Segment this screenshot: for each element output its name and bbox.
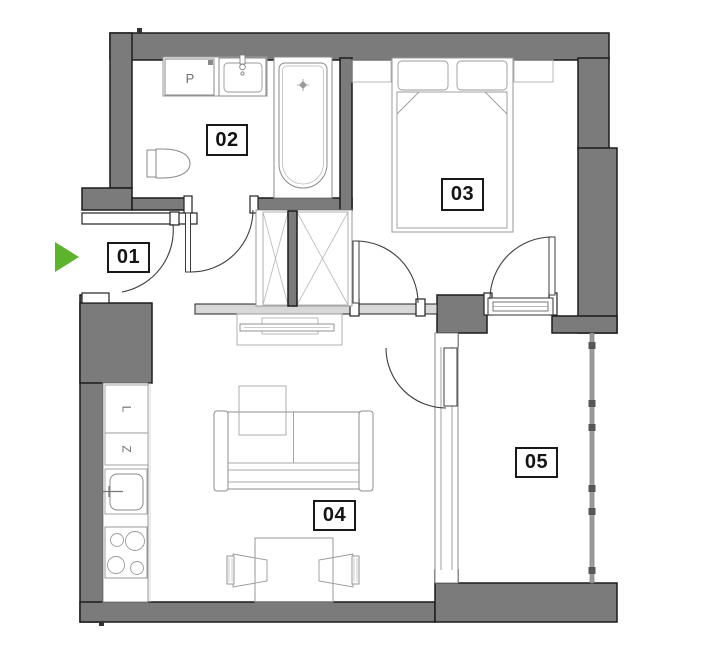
bathroom-sink	[219, 55, 266, 96]
kitchen-unit-z-label: Z	[120, 445, 134, 452]
floor-plan-drawing: P L Z	[0, 0, 714, 669]
walls	[80, 28, 617, 626]
nightstand-right	[514, 60, 553, 82]
entrance-lintel	[82, 213, 197, 224]
dining-chair-right	[319, 554, 359, 587]
kitchen-units: L Z	[103, 383, 150, 602]
wardrobe	[256, 210, 352, 306]
nightstand-left	[352, 60, 391, 82]
pillow-left	[398, 61, 448, 90]
bedroom-balcony-door	[488, 237, 555, 315]
washing-machine-label: P	[186, 71, 195, 86]
entrance-sill	[82, 293, 109, 303]
kitchen-sink	[103, 469, 147, 514]
sofa-armrest-left	[214, 411, 228, 491]
tv-cabinet	[237, 314, 342, 345]
pillow-right	[457, 61, 507, 90]
wall-tick-top	[137, 28, 142, 33]
room-label-01: 01	[107, 242, 150, 273]
room-label-04: 04	[313, 500, 356, 531]
room-label-03: 03	[441, 178, 484, 211]
living-balcony-door	[386, 348, 457, 408]
dining-chair-left	[227, 554, 267, 587]
balcony-railing	[589, 333, 596, 583]
room-label-05: 05	[515, 447, 558, 478]
wall-tick-bottom	[99, 622, 104, 626]
sofa-armrest-right	[359, 411, 373, 491]
entrance-arrow-icon	[55, 242, 79, 272]
bathtub	[274, 57, 332, 198]
cooktop	[105, 527, 147, 578]
washing-machine: P	[165, 59, 214, 95]
sofa	[214, 411, 373, 491]
floor-plan: P L Z	[0, 0, 714, 669]
toilet	[147, 149, 190, 178]
room-label-02: 02	[206, 124, 248, 156]
kitchen-unit-l-label: L	[120, 406, 134, 413]
bedroom-door	[353, 241, 418, 303]
